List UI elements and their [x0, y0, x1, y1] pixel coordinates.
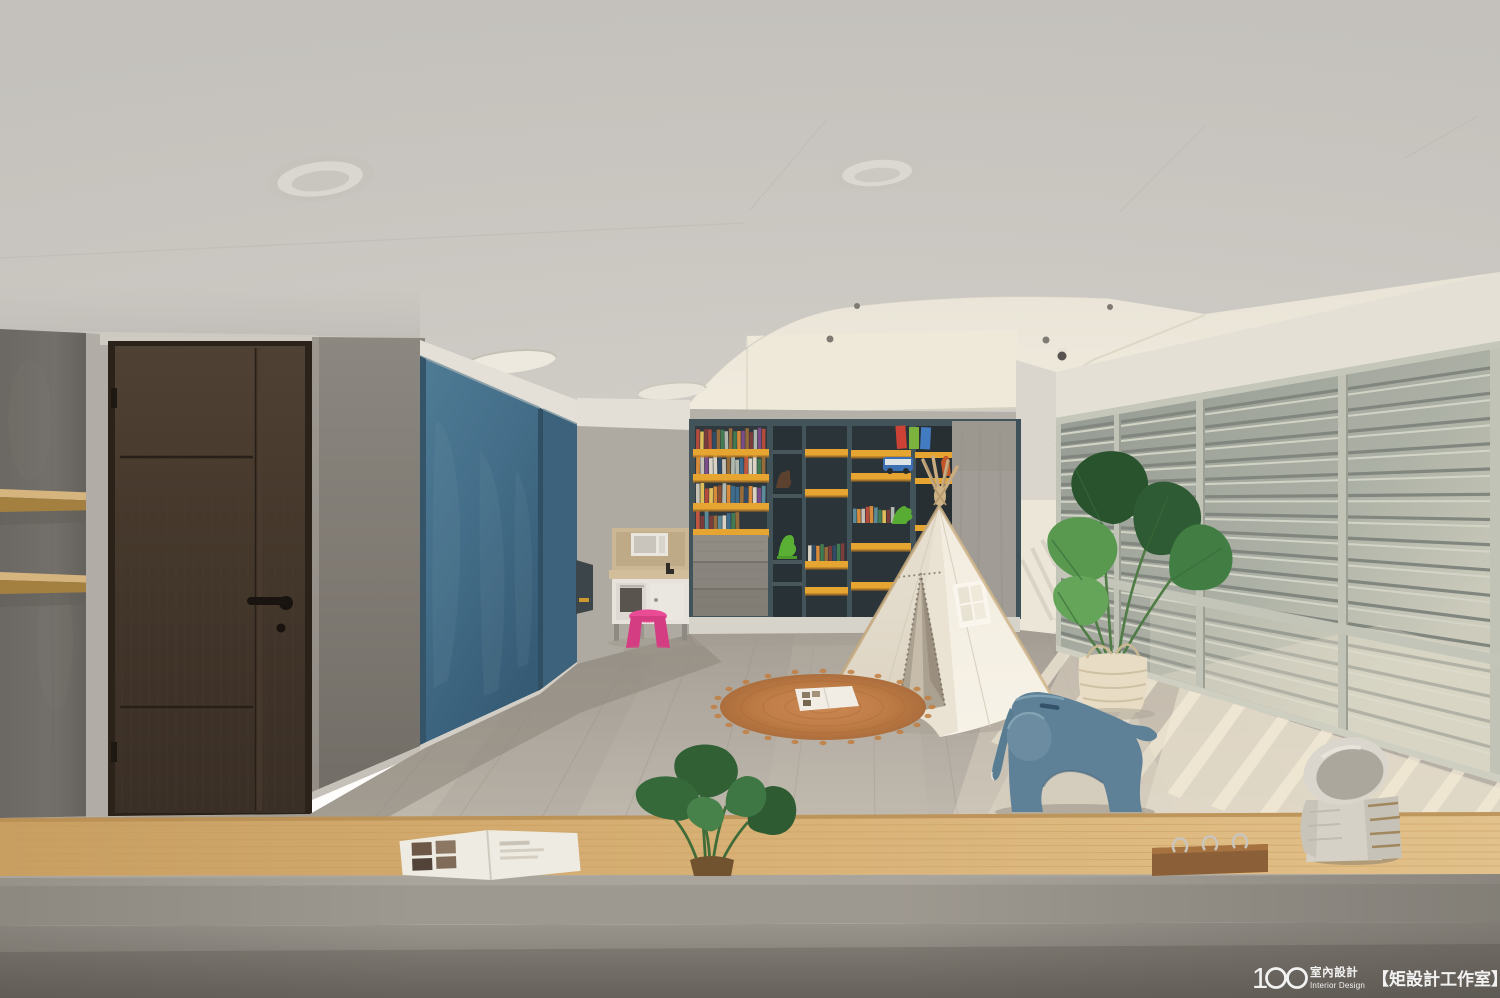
svg-text:【矩設計工作室】: 【矩設計工作室】: [1372, 969, 1500, 989]
svg-text:Interior Design: Interior Design: [1310, 981, 1365, 990]
svg-text:室內設計: 室內設計: [1310, 965, 1358, 979]
